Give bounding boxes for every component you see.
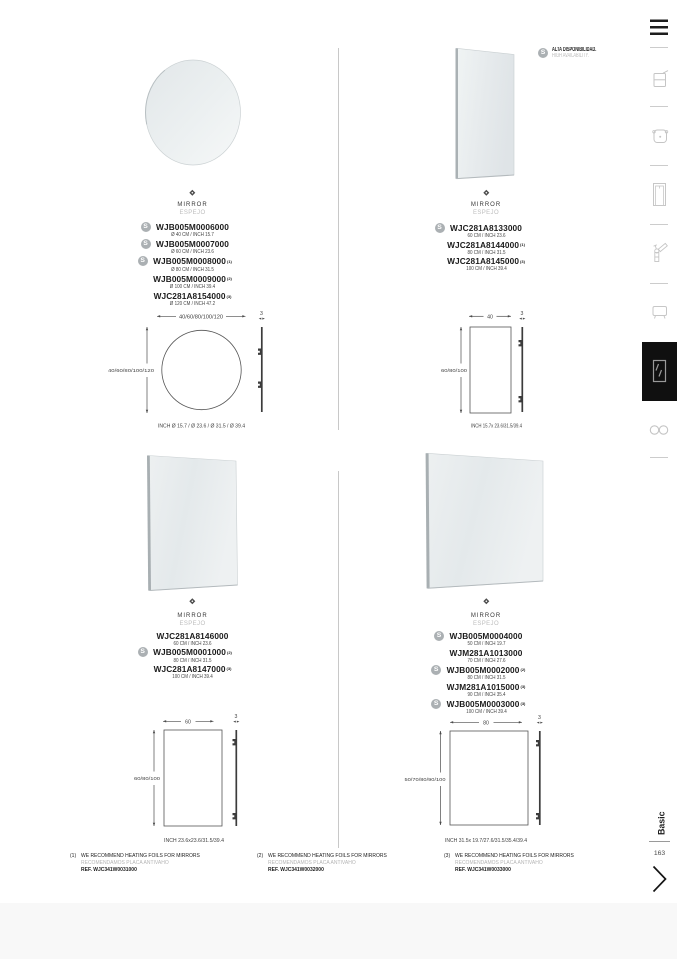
svg-text:50/70/80/90/100: 50/70/80/90/100	[405, 777, 446, 783]
svg-text:3: 3	[235, 714, 238, 720]
svg-text:163: 163	[654, 850, 666, 857]
svg-text:INCH 31.5x 19.7/27.6/31.5/35.4: INCH 31.5x 19.7/27.6/31.5/35.4/39.4	[445, 838, 527, 844]
svg-text:60/80/100: 60/80/100	[134, 776, 160, 782]
svg-text:INCH Ø 15.7 / Ø 23.6 / Ø 31.5: INCH Ø 15.7 / Ø 23.6 / Ø 31.5 / Ø 39.4	[158, 424, 245, 430]
svg-text:Basic: Basic	[657, 811, 667, 835]
svg-text:3: 3	[260, 311, 263, 317]
svg-text:40/60/80/100/120: 40/60/80/100/120	[108, 368, 154, 374]
svg-text:80: 80	[483, 720, 489, 726]
svg-text:3: 3	[521, 311, 524, 317]
svg-text:INCH 23.6x23.6/31.5/39.4: INCH 23.6x23.6/31.5/39.4	[164, 838, 224, 844]
svg-text:INCH 15.7x 23.6/31.5/39.4: INCH 15.7x 23.6/31.5/39.4	[471, 424, 522, 430]
svg-text:60: 60	[185, 719, 191, 725]
svg-text:60/80/100: 60/80/100	[441, 368, 467, 374]
svg-text:40: 40	[487, 314, 493, 320]
svg-text:40/60/80/100/120: 40/60/80/100/120	[179, 314, 223, 320]
